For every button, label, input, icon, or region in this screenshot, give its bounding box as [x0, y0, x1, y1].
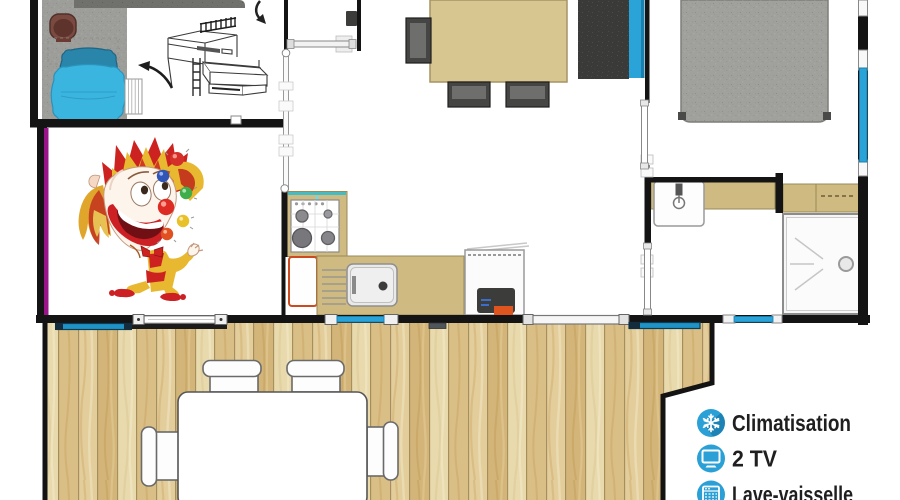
- svg-text:Climatisation: Climatisation: [732, 410, 851, 436]
- svg-text:Lave-vaisselle: Lave-vaisselle: [732, 482, 853, 500]
- svg-text:2 TV: 2 TV: [732, 446, 778, 472]
